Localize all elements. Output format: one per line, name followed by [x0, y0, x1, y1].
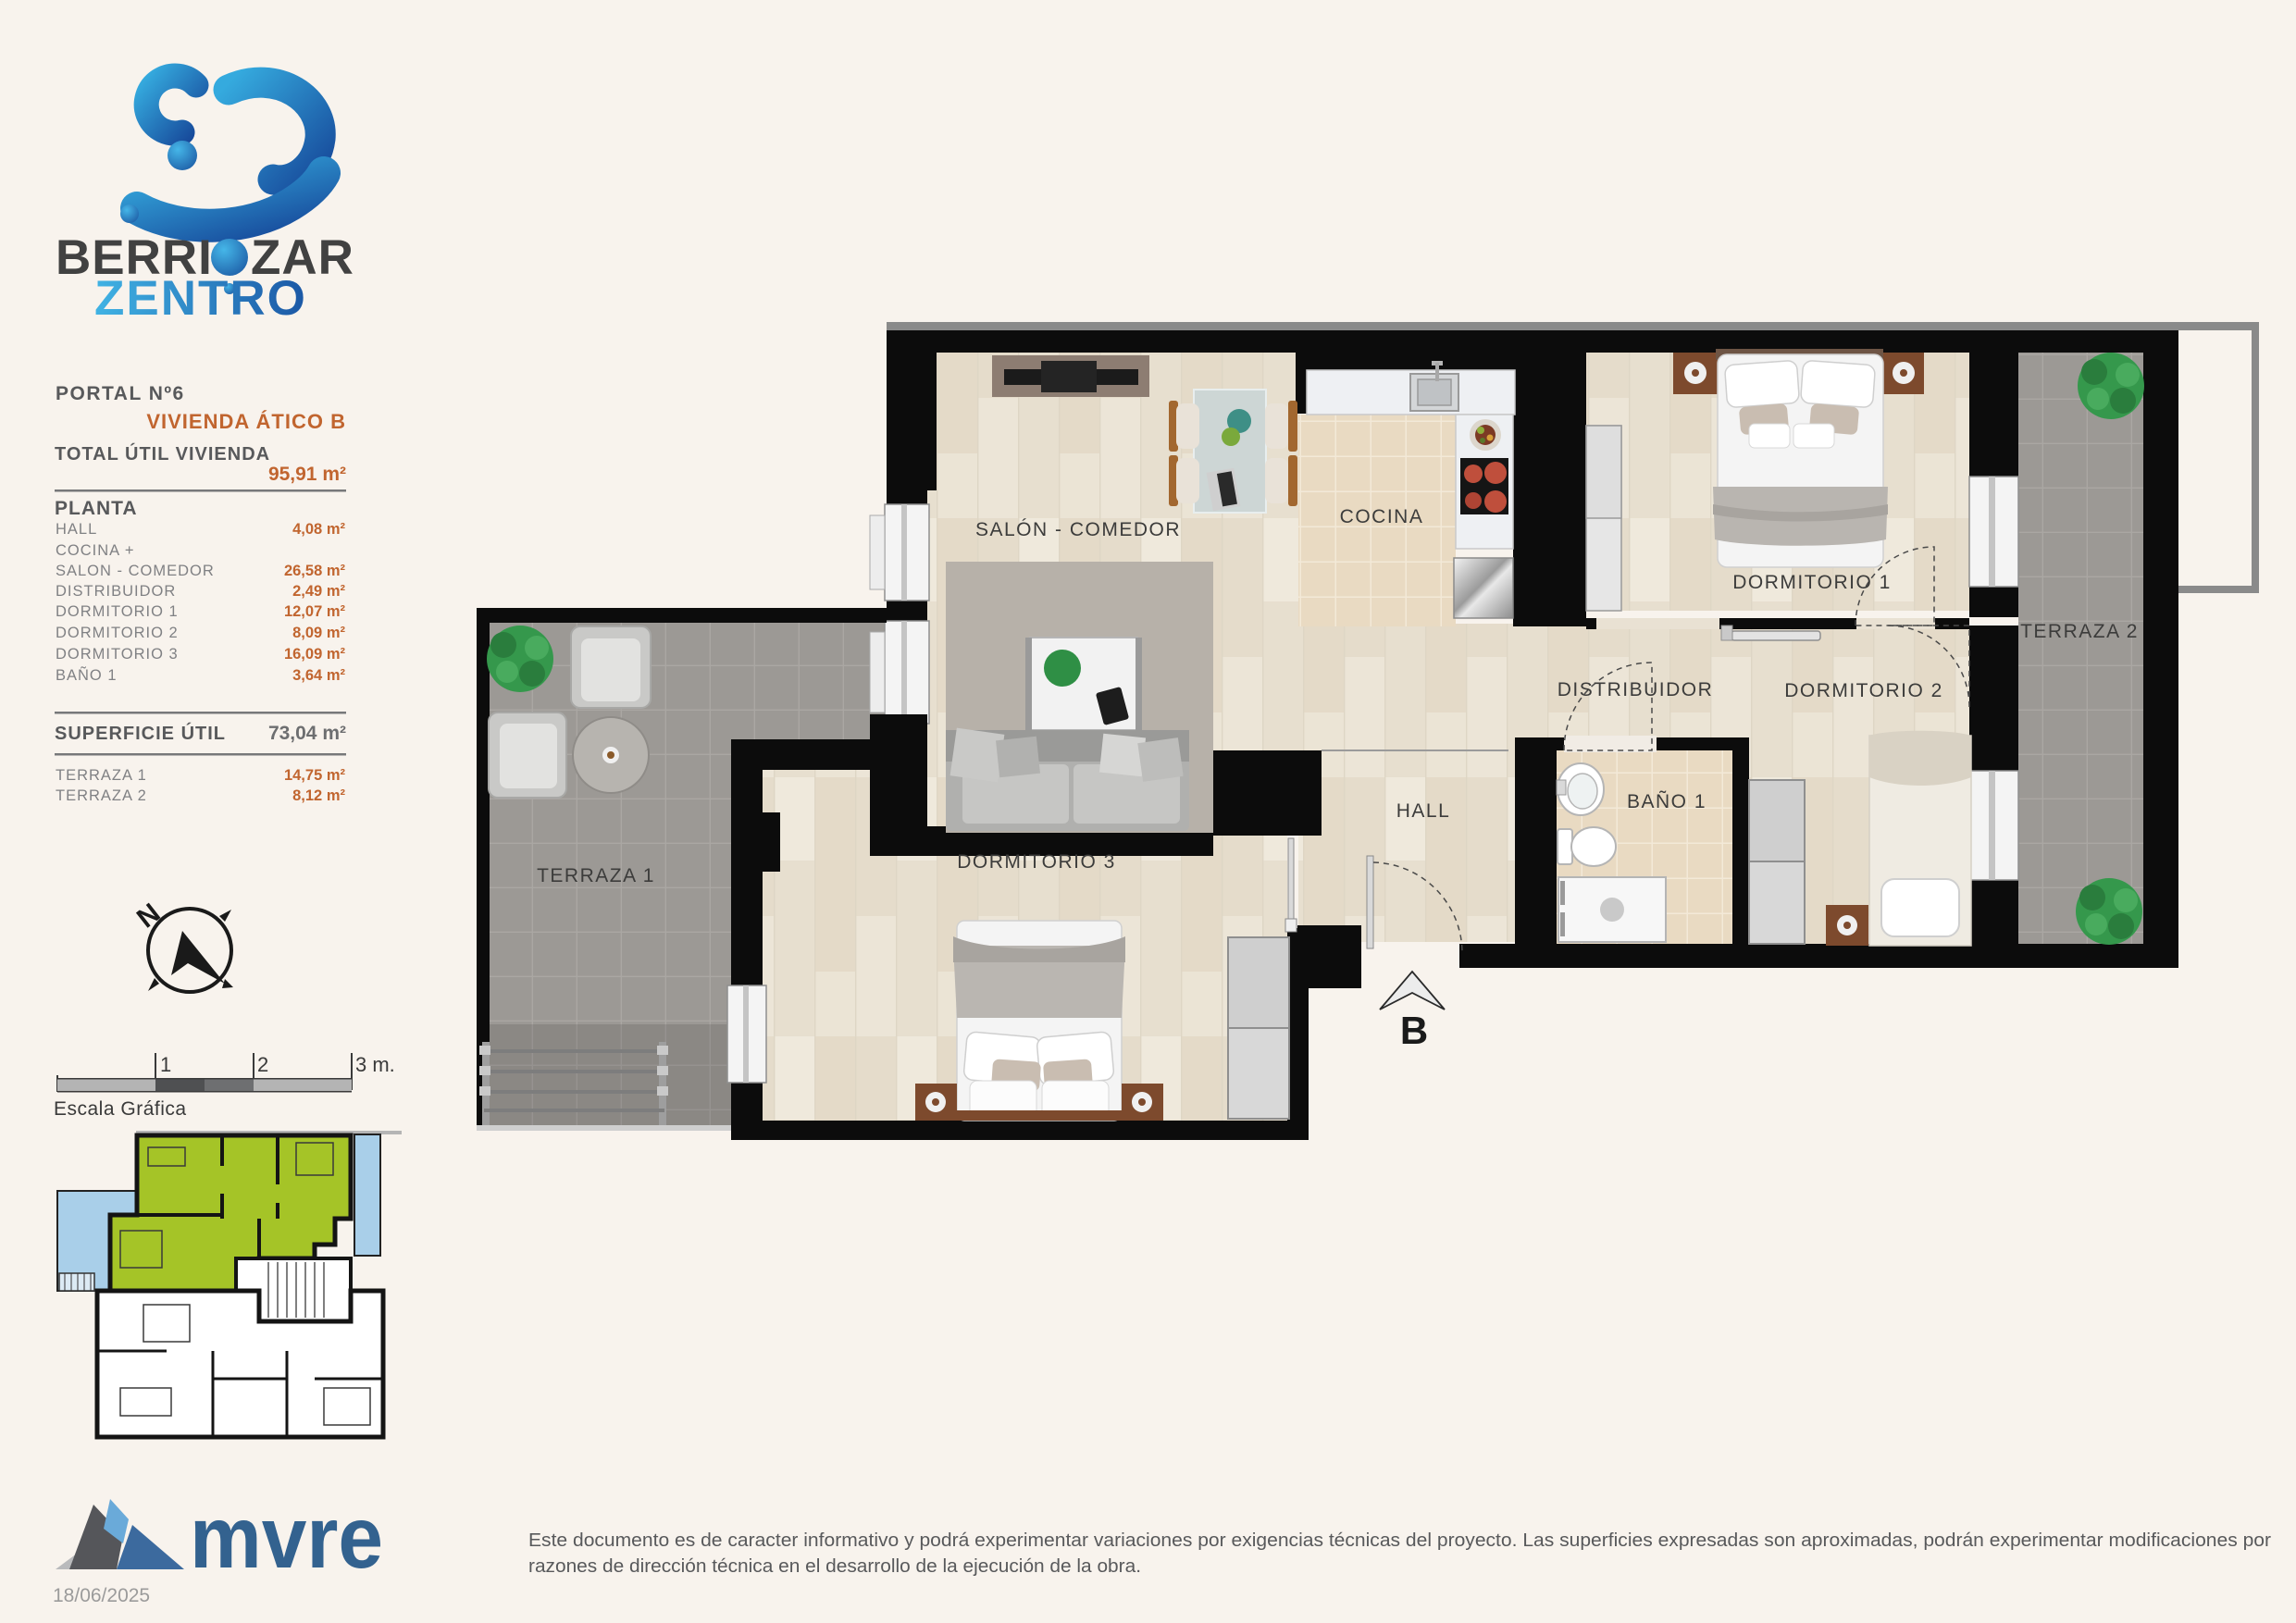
- svg-text:SUPERFICIE ÚTIL: SUPERFICIE ÚTIL: [55, 722, 226, 744]
- svg-text:DORMITORIO 2: DORMITORIO 2: [1784, 680, 1943, 701]
- svg-text:SALÓN - COMEDOR: SALÓN - COMEDOR: [975, 519, 1181, 540]
- svg-text:TERRAZA 1: TERRAZA 1: [56, 767, 147, 784]
- svg-text:ZENTRO: ZENTRO: [94, 271, 307, 326]
- svg-text:BAÑO 1: BAÑO 1: [56, 665, 118, 684]
- svg-text:TERRAZA 1: TERRAZA 1: [537, 865, 655, 886]
- svg-text:COCINA +: COCINA +: [56, 542, 134, 559]
- svg-text:4,08 m²: 4,08 m²: [292, 521, 345, 538]
- svg-text:mvre: mvre: [190, 1489, 383, 1587]
- svg-text:DORMITORIO 3: DORMITORIO 3: [56, 646, 179, 663]
- svg-text:2,49 m²: 2,49 m²: [292, 583, 345, 600]
- svg-text:3,64 m²: 3,64 m²: [292, 667, 345, 684]
- svg-text:DORMITORIO 1: DORMITORIO 1: [1732, 572, 1892, 593]
- svg-text:TERRAZA 2: TERRAZA 2: [56, 787, 147, 804]
- svg-text:PLANTA: PLANTA: [55, 498, 138, 519]
- svg-text:1: 1: [160, 1053, 171, 1076]
- svg-text:razones de dirección técnica e: razones de dirección técnica en el desar…: [528, 1556, 1141, 1577]
- svg-text:DISTRIBUIDOR: DISTRIBUIDOR: [56, 583, 176, 600]
- svg-text:73,04 m²: 73,04 m²: [268, 723, 346, 744]
- svg-text:TERRAZA 2: TERRAZA 2: [2020, 621, 2139, 642]
- svg-text:14,75 m²: 14,75 m²: [284, 767, 346, 784]
- svg-text:VIVIENDA ÁTICO B: VIVIENDA ÁTICO B: [146, 410, 346, 433]
- svg-text:HALL: HALL: [1396, 800, 1451, 822]
- svg-text:COCINA: COCINA: [1340, 506, 1424, 527]
- svg-text:2: 2: [257, 1053, 268, 1076]
- svg-text:8,12 m²: 8,12 m²: [292, 787, 345, 804]
- svg-text:DORMITORIO 2: DORMITORIO 2: [56, 625, 179, 641]
- svg-text:Este documento es de caracter: Este documento es de caracter informativ…: [528, 1530, 2271, 1551]
- svg-text:DISTRIBUIDOR: DISTRIBUIDOR: [1558, 679, 1714, 700]
- svg-text:SALON - COMEDOR: SALON - COMEDOR: [56, 563, 215, 579]
- svg-text:DORMITORIO 3: DORMITORIO 3: [957, 851, 1116, 873]
- svg-text:B: B: [1400, 1009, 1428, 1052]
- svg-text:8,09 m²: 8,09 m²: [292, 625, 345, 641]
- svg-text:HALL: HALL: [56, 521, 97, 538]
- svg-text:PORTAL Nº6: PORTAL Nº6: [56, 383, 185, 404]
- svg-text:BAÑO 1: BAÑO 1: [1627, 790, 1706, 812]
- svg-text:TOTAL ÚTIL VIVIENDA: TOTAL ÚTIL VIVIENDA: [55, 442, 270, 465]
- svg-text:16,09 m²: 16,09 m²: [284, 646, 346, 663]
- svg-text:26,58 m²: 26,58 m²: [284, 563, 346, 579]
- svg-text:12,07 m²: 12,07 m²: [284, 603, 346, 620]
- svg-text:DORMITORIO 1: DORMITORIO 1: [56, 603, 179, 620]
- svg-text:Escala Gráfica: Escala Gráfica: [54, 1098, 187, 1120]
- svg-text:18/06/2025: 18/06/2025: [53, 1585, 150, 1606]
- svg-text:3 m.: 3 m.: [355, 1053, 395, 1076]
- svg-text:95,91 m²: 95,91 m²: [268, 464, 346, 485]
